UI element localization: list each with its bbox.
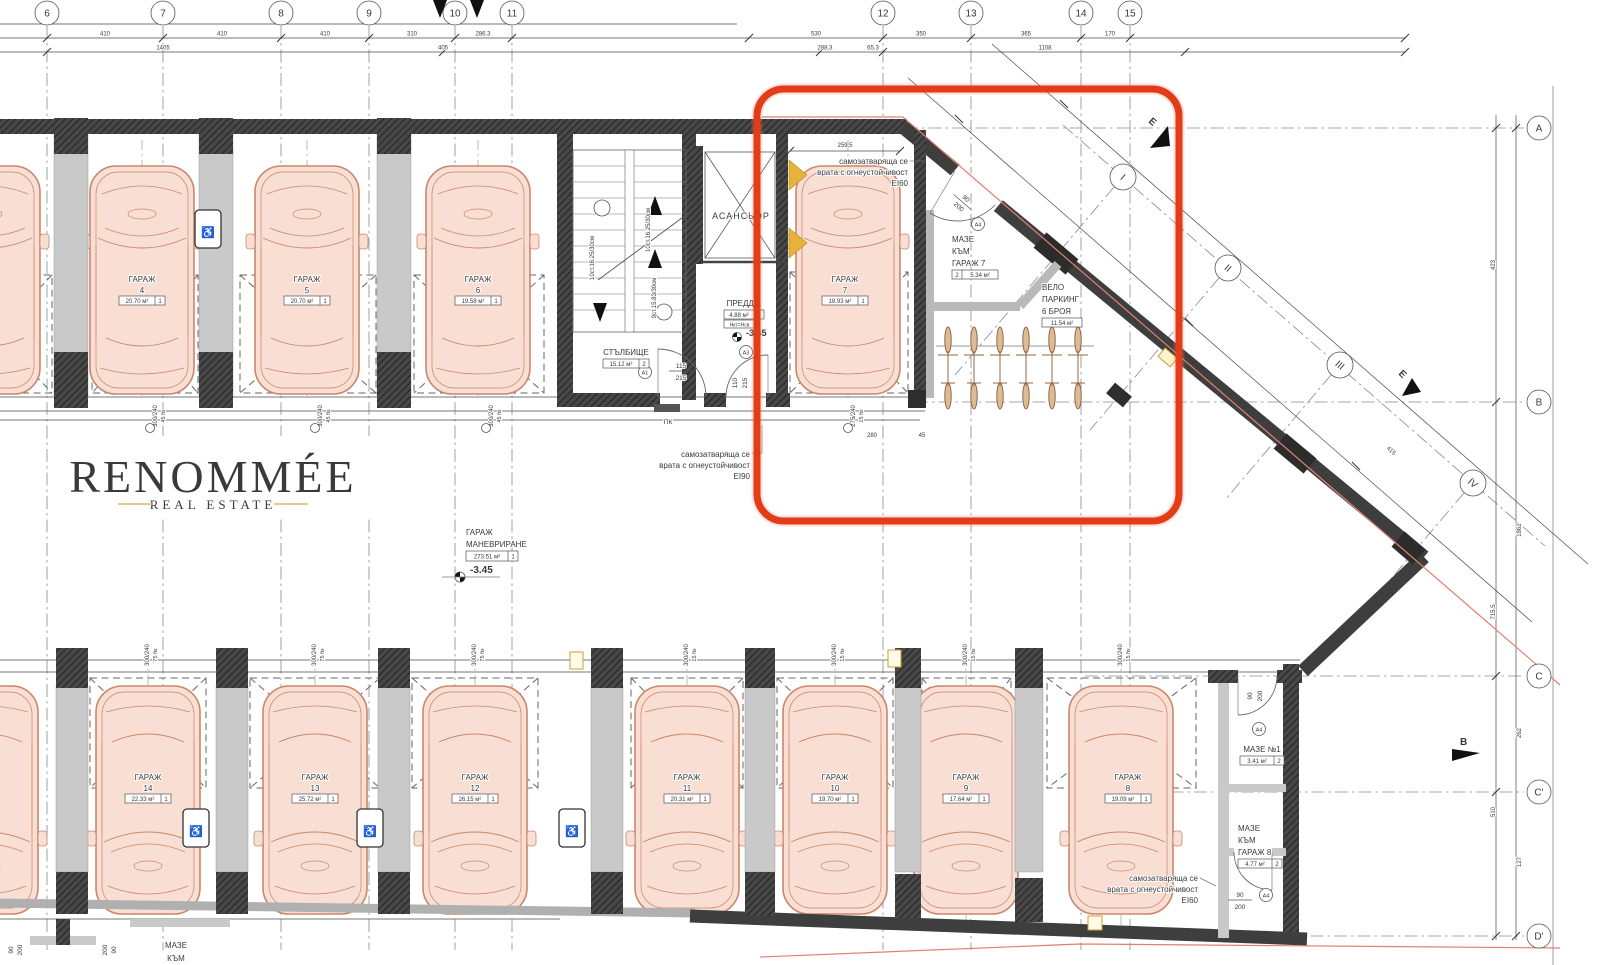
- svg-text:11.54 м²: 11.54 м²: [1051, 321, 1073, 327]
- svg-text:75 fix: 75 fix: [153, 648, 159, 661]
- svg-text:127: 127: [1517, 856, 1523, 867]
- svg-text:300/240: 300/240: [1118, 644, 1124, 666]
- svg-text:200: 200: [102, 944, 109, 955]
- wall-maze-left: [1218, 670, 1229, 938]
- svg-text:90: 90: [1236, 892, 1244, 899]
- svg-text:200: 200: [17, 944, 24, 955]
- svg-text:75 fix: 75 fix: [320, 648, 326, 661]
- svg-text:EI60: EI60: [892, 179, 909, 188]
- svg-text:МАЗЕ №1: МАЗЕ №1: [1243, 745, 1281, 754]
- svg-text:25.72 м²: 25.72 м²: [299, 797, 322, 803]
- grid-bubble-C2: C': [1527, 780, 1551, 804]
- svg-text:19.09 м²: 19.09 м²: [1112, 797, 1135, 803]
- wall-maze7-left: [926, 210, 934, 398]
- grid-bubble-7: 7: [151, 1, 175, 25]
- svg-text:10ст.16.25/30см: 10ст.16.25/30см: [646, 208, 652, 252]
- svg-text:1108: 1108: [1039, 46, 1053, 52]
- svg-text:14: 14: [144, 784, 153, 793]
- svg-text:300/240: 300/240: [472, 644, 478, 666]
- svg-text:530: 530: [811, 32, 822, 38]
- svg-text:90: 90: [1247, 692, 1254, 700]
- svg-text:врата с огнеустойчивост: врата с огнеустойчивост: [659, 461, 750, 470]
- bike-icon: [938, 327, 958, 409]
- svg-text:-3.45: -3.45: [470, 565, 493, 576]
- svg-text:ГАРАЖ: ГАРАЖ: [674, 773, 701, 782]
- svg-text:B: B: [1460, 737, 1467, 748]
- svg-text:13: 13: [311, 784, 320, 793]
- svg-text:9: 9: [366, 9, 372, 20]
- maze-bottom-left-label: МАЗЕ КЪМ: [165, 941, 187, 963]
- svg-text:B: B: [1536, 398, 1543, 409]
- bike-icon: [990, 327, 1010, 409]
- svg-text:13: 13: [965, 9, 977, 20]
- svg-text:10: 10: [449, 9, 461, 20]
- svg-text:15 fix: 15 fix: [840, 648, 846, 661]
- grid-bubble-I: I: [1110, 164, 1136, 190]
- pk-label: ПК: [654, 404, 680, 426]
- door-ref: А4: [975, 223, 982, 229]
- velo-label: ВЕЛО ПАРКИНГ 6 БРОЯ 11.54 м²: [1042, 283, 1082, 327]
- svg-text:170: 170: [1105, 32, 1116, 38]
- staircase: 10ст.16.25/30см 10ст.16.25/30см 9ст.15.8…: [573, 150, 690, 332]
- svg-text:МАНЕВРИРАНЕ: МАНЕВРИРАНЕ: [466, 540, 527, 549]
- bike-parking: [936, 327, 1094, 409]
- svg-text:ГАРАЖ: ГАРАЖ: [1115, 773, 1142, 782]
- svg-text:423: 423: [1491, 259, 1497, 270]
- logo-title: RENOMMÉE: [69, 451, 356, 502]
- threshold: [1106, 383, 1132, 408]
- pillar: [895, 648, 921, 918]
- dimension-chain-top: 4727 410 410 410 310 286.3 530 350 365 1…: [0, 18, 1409, 56]
- svg-text:♿: ♿: [201, 226, 215, 239]
- svg-text:ГАРАЖ 8: ГАРАЖ 8: [1238, 848, 1272, 857]
- grid-bubble-A: A: [1527, 116, 1551, 140]
- svg-text:ВЕЛО: ВЕЛО: [1042, 283, 1064, 292]
- pillar: [1015, 648, 1043, 922]
- svg-text:45 fix: 45 fix: [161, 409, 167, 422]
- grid-bubble-III: III: [1327, 352, 1353, 378]
- svg-text:C: C: [1535, 672, 1542, 683]
- grid-bubble-D: D': [1527, 924, 1551, 948]
- marker: [570, 652, 583, 669]
- grid-bubble-6: 6: [35, 1, 59, 25]
- handicap-icon: ♿: [183, 809, 209, 847]
- svg-text:11: 11: [683, 784, 692, 793]
- svg-text:МАЗЕ: МАЗЕ: [165, 941, 187, 950]
- svg-text:45: 45: [919, 433, 926, 439]
- pillar: [591, 648, 623, 914]
- svg-text:275/240: 275/240: [851, 405, 857, 427]
- svg-text:45 fix: 45 fix: [497, 409, 503, 422]
- svg-text:115: 115: [676, 363, 687, 370]
- grid-bubble-IV: IV: [1460, 470, 1486, 496]
- wall-bottom-right: [690, 916, 1307, 939]
- door-ref: А4: [1263, 894, 1270, 900]
- svg-text:90: 90: [111, 946, 118, 954]
- pillar: [216, 648, 248, 914]
- svg-text:715.5: 715.5: [1491, 604, 1497, 620]
- svg-text:15 fix: 15 fix: [859, 409, 865, 422]
- svg-text:МАЗЕ: МАЗЕ: [952, 235, 974, 244]
- logo: RENOMMÉE REAL ESTATE: [50, 436, 376, 516]
- grid-bubble-11: 11: [500, 1, 524, 25]
- svg-text:1405: 1405: [156, 46, 170, 52]
- svg-text:510: 510: [1491, 806, 1497, 817]
- svg-text:6: 6: [476, 286, 481, 295]
- bike-icon: [964, 327, 984, 409]
- svg-text:300/240: 300/240: [489, 405, 495, 427]
- svg-text:22.33 м²: 22.33 м²: [132, 797, 155, 803]
- svg-text:262: 262: [1517, 727, 1523, 738]
- svg-text:5.34 м²: 5.34 м²: [970, 273, 989, 279]
- pillar: [745, 648, 775, 916]
- svg-text:ГАРАЖ: ГАРАЖ: [832, 275, 859, 284]
- svg-text:300/240: 300/240: [312, 644, 318, 666]
- maze7-label: МАЗЕ КЪМ ГАРАЖ 7 25.34 м²: [952, 235, 998, 279]
- handicap-icon: ♿: [195, 210, 221, 248]
- svg-text:19.58 м²: 19.58 м²: [462, 299, 485, 305]
- svg-text:12: 12: [471, 784, 480, 793]
- wall-bottom-left: [0, 903, 695, 913]
- svg-text:4.88 м²: 4.88 м²: [729, 313, 748, 319]
- dim-ticks-top: [43, 34, 1409, 56]
- axis-arrow-E: E: [1396, 368, 1421, 396]
- pillar: [56, 648, 88, 914]
- axis-arrow-B: B: [1452, 737, 1480, 761]
- svg-text:300/240: 300/240: [963, 644, 969, 666]
- svg-text:15 fix: 15 fix: [971, 648, 977, 661]
- svg-text:300/240: 300/240: [318, 405, 324, 427]
- note-ei90: самозатваряща се врата с огнеустойчивост…: [659, 425, 762, 481]
- handicap-icon: ♿: [559, 809, 585, 847]
- svg-text:самозатваряща се: самозатваряща се: [1129, 874, 1198, 883]
- pillar: [199, 118, 233, 408]
- svg-text:♿: ♿: [189, 825, 203, 838]
- svg-text:8: 8: [278, 9, 284, 20]
- grid-bubble-C: C: [1527, 664, 1551, 688]
- svg-text:МАЗЕ: МАЗЕ: [1238, 824, 1260, 833]
- svg-text:♿: ♿: [565, 825, 579, 838]
- grid-bubble-B: B: [1527, 390, 1551, 414]
- svg-text:15.12 м²: 15.12 м²: [610, 362, 633, 368]
- svg-text:7: 7: [843, 286, 848, 295]
- marker: [1088, 916, 1102, 930]
- wall-stair-left: [557, 134, 573, 396]
- svg-text:288.3: 288.3: [817, 46, 833, 52]
- svg-text:A: A: [1536, 124, 1543, 135]
- svg-text:12: 12: [877, 9, 889, 20]
- svg-text:405: 405: [438, 46, 449, 52]
- svg-text:8: 8: [1126, 784, 1131, 793]
- svg-text:СТЪЛБИЩЕ: СТЪЛБИЩЕ: [603, 348, 649, 357]
- svg-text:19.70 м²: 19.70 м²: [819, 797, 842, 803]
- svg-text:6: 6: [44, 9, 50, 20]
- svg-text:410: 410: [320, 32, 331, 38]
- svg-text:280: 280: [867, 433, 878, 439]
- svg-text:6 БРОЯ: 6 БРОЯ: [1042, 307, 1071, 316]
- floor-plan: 4727 410 410 410 310 286.3 530 350 365 1…: [0, 0, 1600, 965]
- svg-text:90: 90: [8, 946, 15, 954]
- svg-text:350: 350: [916, 32, 927, 38]
- grid-bubble-13: 13: [959, 1, 983, 25]
- svg-text:ГАРАЖ: ГАРАЖ: [135, 773, 162, 782]
- wall-top: [0, 119, 907, 134]
- svg-text:410: 410: [217, 32, 228, 38]
- svg-text:310: 310: [407, 32, 418, 38]
- svg-text:E: E: [1396, 368, 1409, 381]
- svg-text:365: 365: [1021, 32, 1032, 38]
- svg-text:10ст.16.25/30см: 10ст.16.25/30см: [590, 236, 596, 280]
- pillar: [377, 118, 411, 408]
- svg-text:C': C': [1534, 788, 1543, 799]
- svg-text:26.15 м²: 26.15 м²: [459, 797, 482, 803]
- svg-text:D': D': [1534, 932, 1543, 943]
- svg-text:300/240: 300/240: [153, 405, 159, 427]
- bay-dims-bottom: 300/24075 fix 300/24075 fix 300/24075 fi…: [145, 644, 1132, 666]
- grid-bubble-9: 9: [357, 1, 381, 25]
- svg-text:4.77 м²: 4.77 м²: [1245, 862, 1264, 868]
- svg-text:18.93 м²: 18.93 м²: [829, 299, 852, 305]
- pillar: [54, 118, 88, 408]
- svg-text:273.51 м²: 273.51 м²: [474, 554, 500, 560]
- svg-text:5: 5: [305, 286, 310, 295]
- door-ref: А1: [642, 371, 649, 377]
- svg-text:15: 15: [1124, 9, 1136, 20]
- stair-arrow-down-icon: [593, 303, 607, 322]
- svg-text:3.41 м²: 3.41 м²: [1247, 759, 1266, 765]
- logo-subtitle: REAL ESTATE: [150, 497, 277, 512]
- svg-text:110: 110: [732, 377, 739, 388]
- pillar: [378, 648, 410, 914]
- svg-text:200: 200: [1257, 690, 1264, 701]
- svg-text:ГАРАЖ: ГАРАЖ: [294, 275, 321, 284]
- wall-garage7-right: [914, 130, 926, 402]
- grid-bubble-12: 12: [871, 1, 895, 25]
- svg-text:17.64 м²: 17.64 м²: [950, 797, 973, 803]
- svg-text:259.5: 259.5: [837, 143, 853, 149]
- bike-icon: [1042, 327, 1062, 409]
- svg-text:20.70 м²: 20.70 м²: [126, 299, 149, 305]
- svg-text:200: 200: [1235, 904, 1246, 911]
- svg-text:65.3: 65.3: [867, 46, 879, 52]
- svg-text:самозатваряща се: самозатваряща се: [839, 157, 908, 166]
- svg-text:45 fix: 45 fix: [326, 409, 332, 422]
- svg-text:286.3: 286.3: [475, 32, 491, 38]
- svg-text:10: 10: [831, 784, 840, 793]
- handicap-icon: ♿: [357, 809, 383, 847]
- svg-text:20.31 м²: 20.31 м²: [671, 797, 694, 803]
- bike-icon: [1068, 327, 1088, 409]
- svg-text:ГАРАЖ: ГАРАЖ: [302, 773, 329, 782]
- svg-text:9ст.15.83/30см: 9ст.15.83/30см: [652, 278, 658, 319]
- grid-bubble-II: II: [1215, 255, 1241, 281]
- stair-label: СТЪЛБИЩЕ15.12 м²2: [603, 348, 649, 368]
- svg-text:215: 215: [676, 375, 687, 382]
- svg-text:300/240: 300/240: [684, 644, 690, 666]
- svg-text:ГАРАЖ 7: ГАРАЖ 7: [952, 259, 986, 268]
- maze8-label: МАЗЕ КЪМ ГАРАЖ 8 4.77 м²2: [1238, 824, 1282, 868]
- svg-text:300/240: 300/240: [145, 644, 151, 666]
- svg-text:ГАРАЖ: ГАРАЖ: [129, 275, 156, 284]
- svg-text:ПК: ПК: [664, 419, 673, 426]
- wall-right: [1283, 664, 1299, 940]
- svg-text:90: 90: [961, 194, 971, 204]
- svg-text:75 fix: 75 fix: [480, 648, 486, 661]
- svg-text:215: 215: [742, 377, 749, 388]
- svg-text:410: 410: [100, 32, 111, 38]
- svg-text:КЪМ: КЪМ: [952, 247, 970, 256]
- svg-text:КЪМ: КЪМ: [167, 954, 185, 963]
- grid-bubble-10: 10: [443, 1, 467, 25]
- svg-text:♿: ♿: [363, 825, 377, 838]
- grid-bubble-8: 8: [269, 1, 293, 25]
- wall-maze7-south: [934, 302, 1020, 311]
- svg-text:9: 9: [964, 784, 969, 793]
- bay-dims-top: 300/24045 fix 300/24045 fix 300/24045 fi…: [146, 405, 926, 440]
- door-ref: А4: [1256, 728, 1263, 734]
- svg-text:7: 7: [160, 9, 166, 20]
- svg-text:ГАРАЖ: ГАРАЖ: [822, 773, 849, 782]
- marker: [888, 650, 901, 667]
- svg-text:КЪМ: КЪМ: [1238, 836, 1256, 845]
- svg-text:ГАРАЖ: ГАРАЖ: [465, 275, 492, 284]
- svg-text:врата с огнеустойчивост: врата с огнеустойчивост: [817, 168, 908, 177]
- car: [0, 166, 49, 394]
- svg-text:EI60: EI60: [1182, 896, 1199, 905]
- svg-text:1862: 1862: [1517, 523, 1523, 537]
- svg-text:15 fix: 15 fix: [692, 648, 698, 661]
- svg-text:15 fix: 15 fix: [1126, 648, 1132, 661]
- svg-text:E: E: [1146, 116, 1158, 129]
- svg-text:300/240: 300/240: [832, 644, 838, 666]
- door-ref: А3: [743, 351, 750, 357]
- car: [0, 686, 47, 914]
- svg-text:ПАРКИНГ: ПАРКИНГ: [1042, 295, 1080, 304]
- section-arrow-icon: [470, 0, 484, 18]
- axis-arrow-E-top: E: [1146, 116, 1170, 148]
- svg-text:самозатваряща се: самозатваряща се: [681, 450, 750, 459]
- svg-text:14: 14: [1075, 9, 1087, 20]
- svg-text:20.70 м²: 20.70 м²: [291, 299, 314, 305]
- elevator: АСАНСЬОР: [694, 146, 786, 264]
- svg-text:EI90: EI90: [734, 472, 751, 481]
- bike-icon: [1016, 327, 1036, 409]
- svg-text:ГАРАЖ: ГАРАЖ: [953, 773, 980, 782]
- wall-return: [1303, 557, 1424, 671]
- grid-bubble-15: 15: [1118, 1, 1142, 25]
- svg-text:11: 11: [507, 9, 518, 20]
- svg-text:ГАРАЖ: ГАРАЖ: [462, 773, 489, 782]
- svg-text:ГАРАЖ: ГАРАЖ: [466, 528, 493, 537]
- svg-text:4: 4: [140, 286, 145, 295]
- maze1-label: МАЗЕ №1 3.41 м²2: [1240, 745, 1284, 765]
- svg-text:врата с огнеустойчивост: врата с огнеустойчивост: [1107, 885, 1198, 894]
- grid-bubble-14: 14: [1069, 1, 1093, 25]
- svg-text:415: 415: [1385, 446, 1397, 458]
- level-mark: [733, 333, 742, 342]
